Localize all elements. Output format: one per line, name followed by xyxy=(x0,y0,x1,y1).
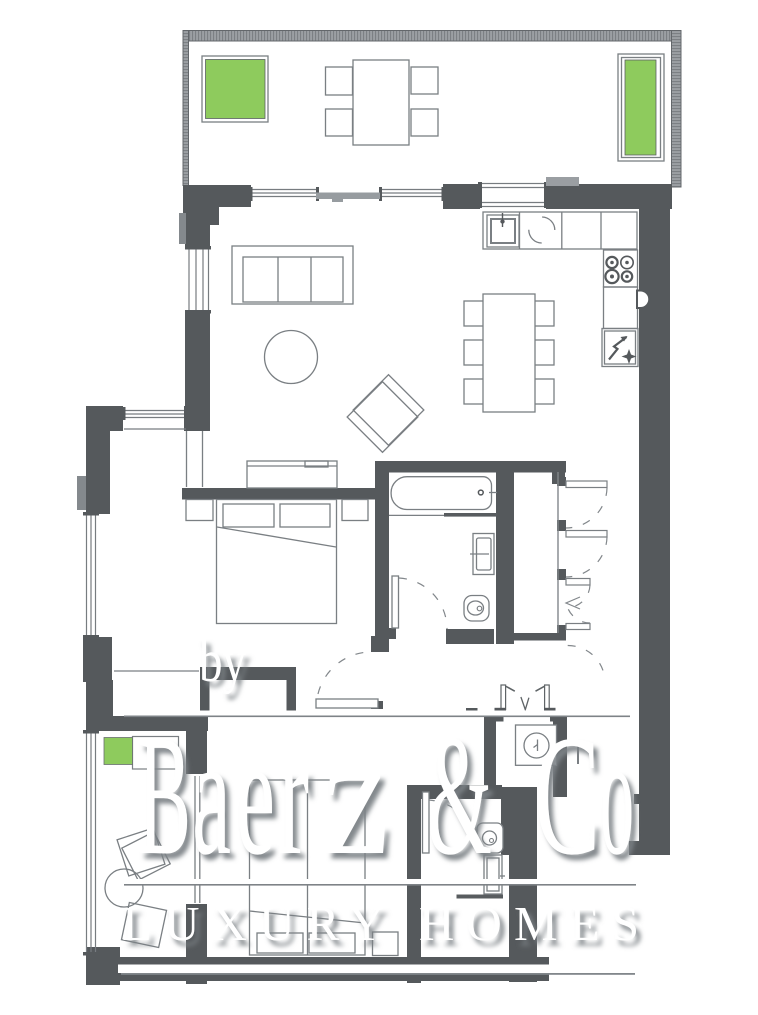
svg-text:a: a xyxy=(192,701,231,891)
svg-text:e: e xyxy=(236,701,275,891)
svg-text:B: B xyxy=(138,701,191,891)
svg-text:by: by xyxy=(199,628,246,694)
svg-text:&: & xyxy=(427,701,492,891)
svg-text:r: r xyxy=(278,701,309,891)
svg-text:C: C xyxy=(534,701,600,891)
svg-text:o: o xyxy=(600,701,634,891)
svg-text:z: z xyxy=(323,701,389,891)
